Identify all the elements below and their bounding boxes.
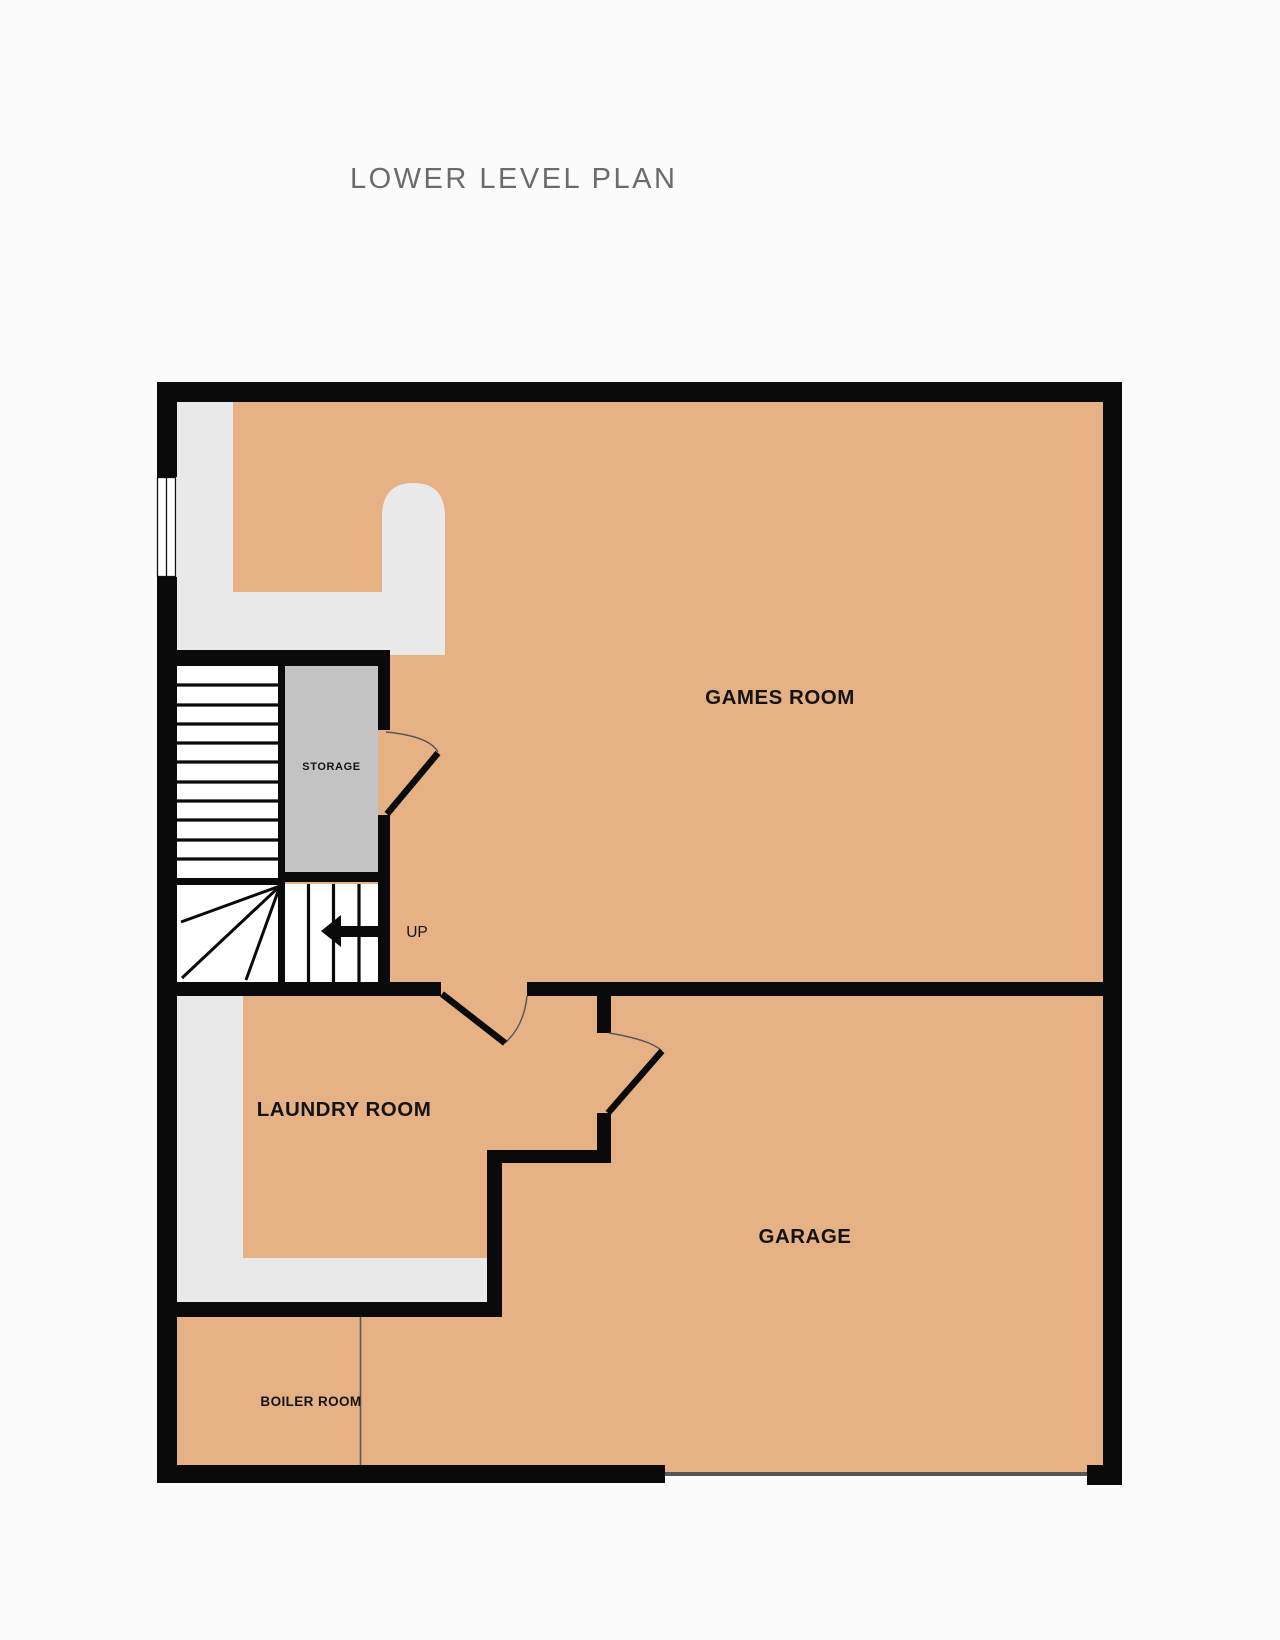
stairs-mid-wall — [278, 650, 285, 996]
floor-plan-drawing: UP — [0, 0, 1280, 1640]
stairs-landing-edge — [177, 878, 285, 885]
wall-top — [157, 382, 1122, 402]
room-label-garage: GARAGE — [759, 1225, 852, 1248]
stairs-upper-run — [177, 666, 278, 878]
garage-door-jamb-top — [597, 996, 611, 1033]
window — [158, 478, 176, 577]
laundry-bottom-wall — [157, 1302, 502, 1317]
wall-right — [1103, 382, 1122, 1485]
wall-left-upper — [157, 382, 177, 477]
room-label-boiler-room: BOILER ROOM — [260, 1394, 361, 1409]
stairs-direction-label: UP — [406, 924, 428, 941]
storage-bottom-wall — [285, 872, 390, 882]
storage-right-wall-lower — [378, 815, 390, 996]
floor-plan-page: LOWER LEVEL PLAN — [0, 0, 1280, 1640]
wall-bottom — [157, 1465, 665, 1483]
step-wall-vertical — [487, 1150, 502, 1317]
wall-bottom-right-stub — [1087, 1465, 1122, 1485]
room-label-games-room: GAMES ROOM — [705, 686, 855, 709]
room-label-storage: STORAGE — [302, 761, 360, 773]
room-label-laundry-room: LAUNDRY ROOM — [257, 1098, 432, 1121]
mid-wall-left — [157, 982, 441, 996]
storage-right-wall-upper — [378, 650, 390, 730]
garage-entry-line — [665, 1472, 1087, 1476]
mid-wall-right — [527, 982, 1103, 996]
step-wall-horizontal — [487, 1150, 611, 1163]
wall-left-lower — [157, 577, 177, 1483]
